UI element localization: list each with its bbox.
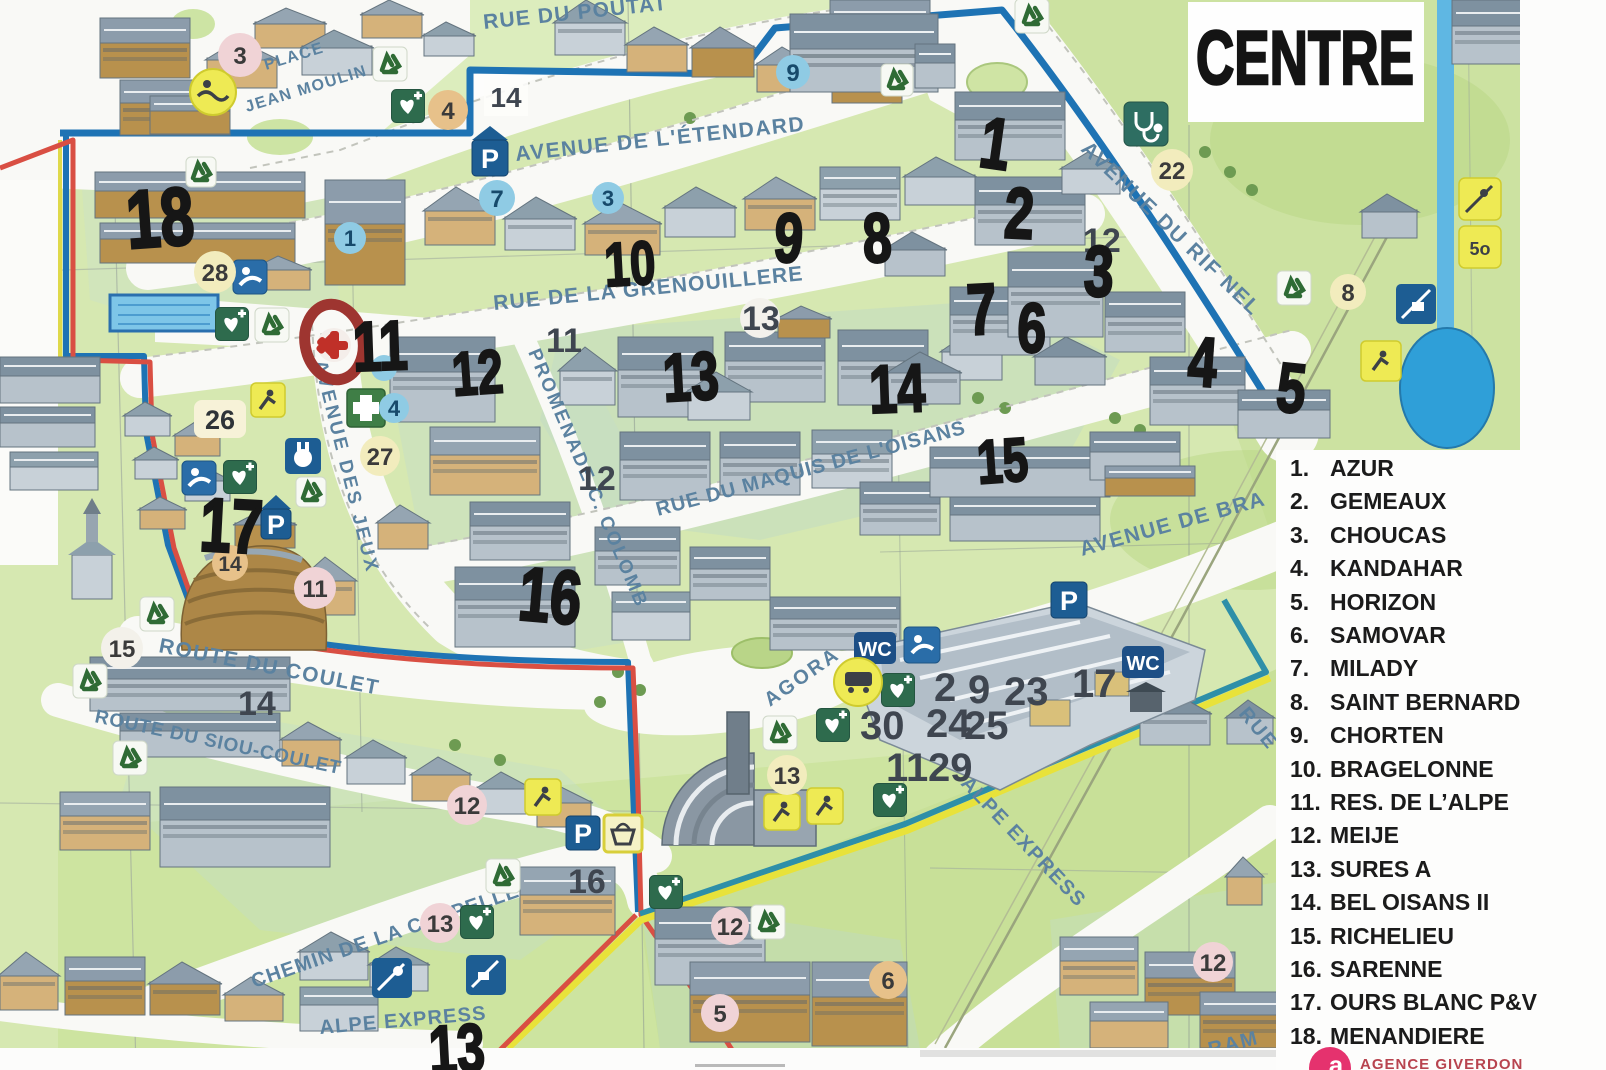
svg-text:SARENNE: SARENNE — [1330, 956, 1442, 982]
svg-text:18: 18 — [123, 171, 197, 266]
svg-text:11: 11 — [546, 322, 582, 360]
svg-text:12: 12 — [1200, 950, 1227, 977]
svg-text:1: 1 — [344, 226, 356, 251]
svg-text:1.: 1. — [1290, 455, 1309, 481]
svg-text:SURES A: SURES A — [1330, 856, 1431, 882]
svg-text:6: 6 — [1016, 289, 1048, 368]
svg-text:11.: 11. — [1290, 789, 1321, 815]
svg-text:9.: 9. — [1290, 722, 1309, 748]
svg-text:12: 12 — [454, 793, 481, 820]
svg-text:SAMOVAR: SAMOVAR — [1330, 622, 1446, 648]
svg-text:8.: 8. — [1290, 689, 1309, 715]
svg-text:MENANDIERE: MENANDIERE — [1330, 1023, 1485, 1049]
svg-text:9: 9 — [786, 60, 799, 87]
svg-text:5: 5 — [713, 1001, 726, 1028]
svg-text:16.: 16. — [1290, 956, 1322, 982]
svg-text:17: 17 — [1072, 662, 1117, 706]
svg-text:7: 7 — [490, 186, 503, 213]
svg-text:HORIZON: HORIZON — [1330, 589, 1436, 615]
svg-text:8: 8 — [861, 199, 893, 278]
svg-text:11: 11 — [351, 307, 408, 387]
svg-text:7.: 7. — [1290, 655, 1309, 681]
svg-text:6.: 6. — [1290, 622, 1309, 648]
svg-text:RICHELIEU: RICHELIEU — [1330, 923, 1454, 949]
svg-text:22: 22 — [1159, 158, 1186, 185]
svg-text:13.: 13. — [1290, 856, 1322, 882]
svg-text:5o: 5o — [1469, 239, 1490, 259]
svg-text:27: 27 — [367, 444, 394, 471]
svg-text:30: 30 — [860, 704, 905, 748]
svg-text:10: 10 — [603, 228, 658, 300]
svg-text:11: 11 — [302, 576, 327, 603]
svg-text:14: 14 — [868, 350, 927, 428]
svg-text:6: 6 — [881, 968, 894, 995]
svg-text:BEL OISANS II: BEL OISANS II — [1330, 889, 1489, 915]
svg-text:5.: 5. — [1290, 589, 1309, 615]
svg-text:10.: 10. — [1290, 756, 1322, 782]
svg-text:17: 17 — [198, 482, 265, 570]
svg-text:26: 26 — [205, 405, 235, 435]
svg-text:CENTRE: CENTRE — [1196, 16, 1414, 101]
svg-text:P: P — [1060, 586, 1078, 616]
svg-text:15: 15 — [975, 425, 1031, 498]
svg-text:14.: 14. — [1290, 889, 1322, 915]
svg-text:15: 15 — [109, 636, 136, 663]
svg-text:4: 4 — [1186, 323, 1220, 403]
svg-text:SAINT BERNARD: SAINT BERNARD — [1330, 689, 1520, 715]
svg-text:15.: 15. — [1290, 923, 1322, 949]
svg-text:23: 23 — [1004, 670, 1049, 714]
svg-text:18.: 18. — [1290, 1023, 1322, 1049]
svg-text:12.: 12. — [1290, 822, 1322, 848]
svg-text:4: 4 — [388, 396, 401, 421]
svg-text:RES. DE L’ALPE: RES. DE L’ALPE — [1330, 789, 1509, 815]
svg-text:P: P — [267, 510, 285, 540]
svg-text:11: 11 — [886, 746, 928, 790]
svg-text:P: P — [574, 819, 592, 849]
svg-text:12: 12 — [717, 914, 744, 941]
svg-text:P: P — [481, 144, 499, 174]
svg-text:13: 13 — [661, 337, 721, 416]
svg-text:MILADY: MILADY — [1330, 655, 1418, 681]
svg-text:7: 7 — [965, 270, 999, 351]
svg-text:16: 16 — [568, 863, 606, 901]
svg-text:OURS BLANC P&V: OURS BLANC P&V — [1330, 989, 1538, 1015]
svg-text:14: 14 — [238, 685, 276, 723]
svg-text:25: 25 — [964, 704, 1009, 748]
svg-text:3: 3 — [602, 186, 614, 211]
svg-text:14: 14 — [490, 82, 522, 113]
svg-text:KANDAHAR: KANDAHAR — [1330, 555, 1463, 581]
svg-text:4.: 4. — [1290, 555, 1309, 581]
svg-text:3: 3 — [233, 43, 246, 70]
svg-text:13: 13 — [427, 911, 454, 938]
svg-text:13: 13 — [742, 300, 780, 338]
svg-text:a: a — [1329, 1050, 1344, 1070]
svg-text:29: 29 — [928, 746, 973, 790]
svg-text:16: 16 — [515, 551, 585, 641]
svg-text:GEMEAUX: GEMEAUX — [1330, 488, 1447, 514]
svg-text:2.: 2. — [1290, 488, 1309, 514]
svg-text:28: 28 — [202, 260, 229, 287]
svg-text:MEIJE: MEIJE — [1330, 822, 1399, 848]
svg-text:AZUR: AZUR — [1330, 455, 1394, 481]
svg-text:4: 4 — [441, 98, 455, 125]
svg-text:2: 2 — [1002, 174, 1036, 255]
svg-text:13: 13 — [427, 1009, 487, 1070]
svg-text:13: 13 — [774, 763, 801, 790]
svg-text:AGENCE GIVERDON: AGENCE GIVERDON — [1360, 1056, 1523, 1070]
svg-text:3: 3 — [1083, 232, 1115, 313]
svg-text:CHOUCAS: CHOUCAS — [1330, 522, 1446, 548]
svg-text:8: 8 — [1341, 280, 1354, 307]
svg-text:9: 9 — [772, 199, 806, 279]
svg-text:12: 12 — [578, 460, 616, 498]
svg-text:CHORTEN: CHORTEN — [1330, 722, 1444, 748]
svg-text:WC: WC — [1126, 653, 1159, 675]
svg-text:BRAGELONNE: BRAGELONNE — [1330, 756, 1494, 782]
svg-text:12: 12 — [450, 337, 506, 410]
svg-text:3.: 3. — [1290, 522, 1309, 548]
svg-text:17.: 17. — [1290, 989, 1322, 1015]
